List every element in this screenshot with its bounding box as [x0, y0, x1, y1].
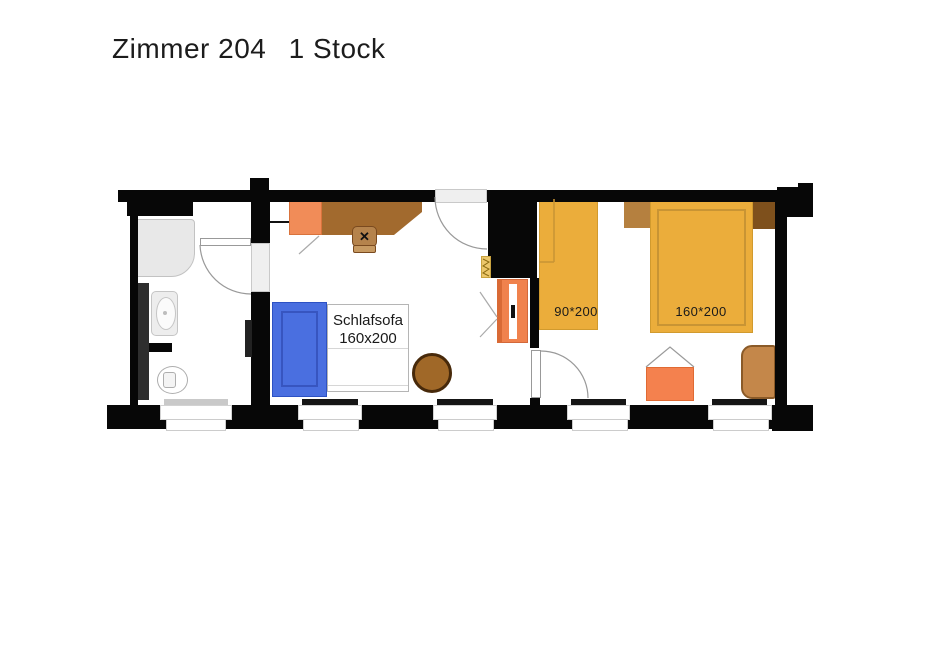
bathroom-door-leaf [200, 238, 251, 246]
wardrobe-swing-lines [480, 292, 497, 337]
wardrobe-handle [511, 305, 515, 318]
luggage-rack [646, 367, 694, 401]
window-4-sill [572, 419, 628, 431]
window-3-sill [438, 419, 494, 431]
wall-left-lining [138, 283, 149, 400]
bedroom-door-leaf [531, 350, 541, 398]
wall-bathroom-lower [251, 292, 270, 407]
window-5-sill [713, 419, 769, 431]
window-4 [567, 405, 630, 420]
desk-corner-line [299, 236, 319, 254]
shower [134, 219, 195, 277]
bedside-block-right [753, 202, 777, 229]
window-2-frame [302, 399, 358, 405]
wall-right [775, 192, 787, 407]
counter-line [270, 221, 289, 223]
round-table [412, 353, 452, 393]
sofa-fold-line [328, 348, 408, 349]
page-title: Zimmer 204 1 Stock [112, 33, 386, 65]
entry-door-opening [435, 189, 487, 203]
window-3-frame [437, 399, 493, 405]
wall-block-center [488, 200, 537, 278]
wall-left [130, 190, 138, 407]
sofa-bed-cushion [281, 311, 318, 387]
window-5-frame [712, 399, 767, 405]
wall-sink-stub [149, 343, 172, 352]
toilet-seat [163, 372, 176, 388]
double-bed-label: 160*200 [665, 304, 737, 319]
entry-door-arc [435, 197, 487, 249]
heater-symbol [481, 256, 491, 278]
luggage-rack-stand [646, 347, 694, 367]
floor-label: 1 Stock [289, 33, 386, 64]
dresser [289, 198, 322, 235]
wall-tip-top-right [798, 183, 813, 191]
bathroom-radiator [245, 320, 252, 357]
wall-bathroom-upper [251, 190, 270, 243]
bedroom-door-arc [541, 351, 588, 398]
wall-corner-bottom-right [772, 405, 813, 431]
armchair [741, 345, 776, 399]
desk-chair-back [353, 245, 376, 253]
window-1-sill [166, 419, 226, 431]
window-1 [160, 405, 232, 420]
window-2-sill [303, 419, 359, 431]
window-3 [433, 405, 497, 420]
desk-chair: ✕ [352, 226, 377, 247]
sofa-bed-label-line2: 160x200 [328, 330, 408, 348]
floor-plan-page: Zimmer 204 1 Stock ✕ [0, 0, 940, 664]
window-1-frame [164, 399, 228, 405]
window-5 [708, 405, 772, 420]
bedside-block-left [624, 202, 650, 228]
sofa-bed-label-line1: Schlafsofa [328, 312, 408, 330]
window-4-frame [571, 399, 626, 405]
wall-bedroom-upper [530, 278, 539, 348]
room-number-label: Zimmer 204 [112, 33, 266, 64]
sofa-fold-line-2 [328, 385, 408, 386]
wardrobe-side [497, 279, 502, 343]
bathroom-door-opening [251, 243, 270, 292]
sink-drain [163, 311, 167, 315]
single-bed-label: 90*200 [551, 304, 601, 319]
window-2 [298, 405, 362, 420]
sofa-bed-label: Schlafsofa 160x200 [328, 312, 408, 347]
bathroom-door-arc [200, 245, 251, 294]
